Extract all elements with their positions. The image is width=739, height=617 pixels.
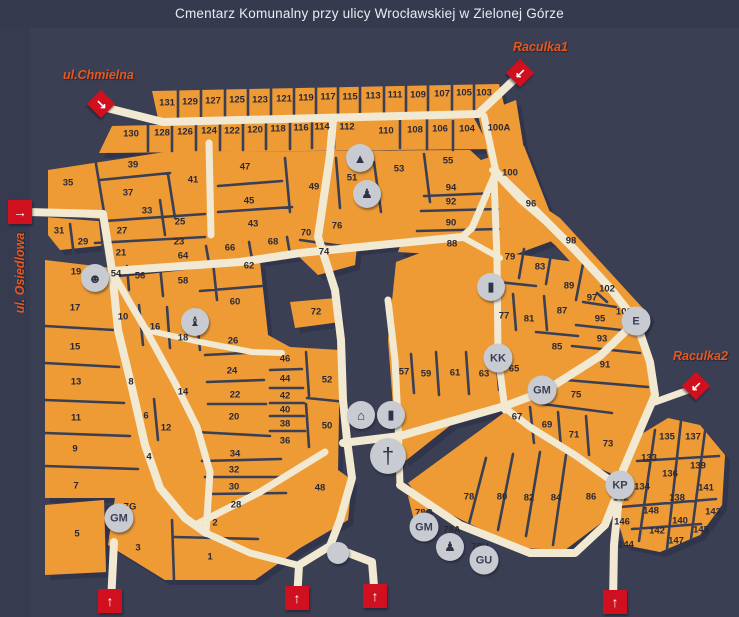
section-4[interactable]: 4: [146, 452, 151, 463]
section-5[interactable]: 5: [74, 529, 79, 540]
entrance-osiedlowa-icon[interactable]: →: [8, 200, 32, 224]
section-24[interactable]: 24: [227, 366, 238, 377]
section-22[interactable]: 22: [230, 390, 241, 401]
section-109[interactable]: 109: [410, 90, 426, 101]
section-47[interactable]: 47: [240, 162, 251, 173]
section-117[interactable]: 117: [320, 92, 335, 103]
chapel-icon: ⌂: [347, 401, 375, 429]
entrance-south-4-icon[interactable]: ↑: [603, 590, 627, 614]
section-103[interactable]: 103: [476, 88, 492, 99]
entrance-raculka1-icon[interactable]: ↙: [506, 59, 534, 87]
section-119[interactable]: 119: [298, 93, 313, 104]
section-76[interactable]: 76: [332, 221, 343, 232]
section-105[interactable]: 105: [456, 88, 472, 99]
section-87[interactable]: 87: [557, 306, 568, 317]
entrance-arrow-icon: →: [13, 204, 27, 220]
section-82[interactable]: 82: [524, 493, 535, 504]
section-74[interactable]: 74: [319, 247, 330, 258]
section-134[interactable]: 134: [634, 482, 650, 493]
section-2[interactable]: 2: [212, 518, 217, 529]
section-14[interactable]: 14: [178, 387, 189, 398]
section-115[interactable]: 115: [342, 92, 357, 103]
section-130[interactable]: 130: [123, 129, 139, 140]
section-144[interactable]: 144: [618, 540, 634, 551]
section-32[interactable]: 32: [229, 465, 240, 476]
section-44[interactable]: 44: [280, 374, 291, 385]
section-143[interactable]: 143: [705, 507, 721, 518]
section-131[interactable]: 131: [159, 98, 175, 109]
section-148[interactable]: 148: [643, 506, 659, 517]
section-137[interactable]: 137: [685, 432, 701, 443]
section-79[interactable]: 79: [505, 252, 516, 263]
section-78[interactable]: 78: [464, 492, 475, 503]
entrance-arrow-icon: ↙: [691, 378, 702, 394]
e-badge-icon: E: [622, 307, 651, 336]
section-116[interactable]: 116: [293, 123, 308, 134]
street-label-raculka1: Raculka1: [513, 40, 568, 54]
section-68[interactable]: 68: [268, 237, 279, 248]
section-56[interactable]: 56: [135, 271, 146, 282]
section-45[interactable]: 45: [244, 196, 255, 207]
section-35[interactable]: 35: [63, 178, 74, 189]
section-54[interactable]: 54: [111, 269, 122, 280]
section-30[interactable]: 30: [229, 482, 240, 493]
section-107[interactable]: 107: [434, 89, 450, 100]
section-140[interactable]: 140: [672, 516, 688, 527]
section-138[interactable]: 138: [669, 493, 685, 504]
section-81[interactable]: 81: [524, 314, 535, 325]
section-96[interactable]: 96: [526, 199, 537, 210]
section-49[interactable]: 49: [309, 182, 320, 193]
section-9[interactable]: 9: [72, 444, 77, 455]
kk-badge-icon: KK: [484, 344, 513, 373]
section-6[interactable]: 6: [143, 411, 148, 422]
entrance-arrow-icon: ↑: [372, 588, 379, 604]
gu-badge-icon: GU: [470, 546, 499, 575]
labels-layer: 1311291271251231211191171151131111091071…: [0, 0, 739, 617]
section-8[interactable]: 8: [128, 377, 133, 388]
section-97[interactable]: 97: [587, 293, 598, 304]
section-83[interactable]: 83: [535, 262, 546, 273]
section-73[interactable]: 73: [603, 439, 614, 450]
section-93[interactable]: 93: [597, 334, 608, 345]
section-77[interactable]: 77: [499, 311, 510, 322]
entrance-arrow-icon: ↑: [294, 590, 301, 606]
section-21[interactable]: 21: [116, 248, 127, 259]
section-37[interactable]: 37: [123, 188, 134, 199]
statue-icon: ♟: [353, 180, 381, 208]
section-69[interactable]: 69: [542, 420, 553, 431]
section-58[interactable]: 58: [178, 276, 189, 287]
section-36[interactable]: 36: [280, 436, 291, 447]
entrance-raculka2-icon[interactable]: ↙: [682, 372, 710, 400]
entrance-south-1-icon[interactable]: ↑: [98, 589, 122, 613]
bust-monument-icon: ☻: [81, 264, 109, 292]
section-19[interactable]: 19: [71, 267, 82, 278]
section-67[interactable]: 67: [512, 412, 523, 423]
section-27[interactable]: 27: [117, 226, 128, 237]
section-13[interactable]: 13: [71, 377, 82, 388]
section-147[interactable]: 147: [668, 536, 684, 547]
section-72[interactable]: 72: [311, 307, 322, 318]
section-98[interactable]: 98: [566, 236, 577, 247]
section-3[interactable]: 3: [135, 543, 140, 554]
section-146[interactable]: 146: [614, 517, 630, 528]
section-135[interactable]: 135: [659, 432, 675, 443]
section-124[interactable]: 124: [201, 126, 217, 137]
section-40[interactable]: 40: [280, 405, 291, 416]
section-16[interactable]: 16: [150, 322, 161, 333]
section-66[interactable]: 66: [225, 243, 236, 254]
section-41[interactable]: 41: [188, 175, 199, 186]
section-51[interactable]: 51: [347, 173, 358, 184]
entrance-south-2-icon[interactable]: ↑: [285, 586, 309, 610]
section-121[interactable]: 121: [276, 94, 292, 105]
section-128[interactable]: 128: [154, 128, 170, 139]
section-129[interactable]: 129: [182, 97, 198, 108]
section-17[interactable]: 17: [70, 303, 81, 314]
section-122[interactable]: 122: [224, 126, 240, 137]
gm-badge-icon: GM: [410, 513, 439, 542]
section-139[interactable]: 139: [690, 461, 706, 472]
section-18[interactable]: 18: [178, 333, 189, 344]
street-label-osiedlowa: ul. Osiedlowa: [13, 223, 27, 323]
section-127[interactable]: 127: [205, 96, 221, 107]
section-60[interactable]: 60: [230, 297, 241, 308]
section-112[interactable]: 112: [339, 122, 354, 133]
section-94[interactable]: 94: [446, 183, 457, 194]
section-7[interactable]: 7: [73, 481, 78, 492]
section-28[interactable]: 28: [231, 500, 242, 511]
section-84[interactable]: 84: [551, 493, 562, 504]
section-70[interactable]: 70: [301, 228, 312, 239]
section-31[interactable]: 31: [54, 226, 65, 237]
entrance-south-3-icon[interactable]: ↑: [363, 584, 387, 608]
page-title: Cmentarz Komunalny przy ulicy Wrocławski…: [0, 6, 739, 21]
gm-badge-icon: GM: [528, 376, 557, 405]
kp-badge-icon: KP: [606, 471, 635, 500]
gm-badge-icon: GM: [105, 504, 134, 533]
cross-icon: †: [370, 438, 406, 474]
section-111[interactable]: 111: [388, 90, 403, 101]
section-39[interactable]: 39: [128, 160, 139, 171]
section-91[interactable]: 91: [600, 360, 611, 371]
section-42[interactable]: 42: [280, 391, 291, 402]
section-55[interactable]: 55: [443, 156, 454, 167]
section-110[interactable]: 110: [378, 126, 393, 137]
section-133[interactable]: 133: [641, 453, 657, 464]
cemetery-map-page: 1311291271251231211191171151131111091071…: [0, 0, 739, 617]
section-57[interactable]: 57: [399, 367, 410, 378]
section-126[interactable]: 126: [177, 127, 193, 138]
angel-statue-icon: ♝: [181, 308, 209, 336]
section-118[interactable]: 118: [270, 124, 285, 135]
section-89[interactable]: 89: [564, 281, 575, 292]
section-142[interactable]: 142: [649, 526, 665, 537]
entrance-arrow-icon: ↑: [107, 593, 114, 609]
section-95[interactable]: 95: [595, 314, 606, 325]
section-92[interactable]: 92: [446, 197, 457, 208]
entrance-arrow-icon: ↙: [515, 65, 526, 81]
section-63[interactable]: 63: [479, 369, 490, 380]
section-38[interactable]: 38: [280, 419, 291, 430]
section-10[interactable]: 10: [118, 312, 129, 323]
section-11[interactable]: 11: [71, 413, 81, 424]
tomb-monument-icon: ▮: [477, 273, 505, 301]
section-33[interactable]: 33: [142, 206, 153, 217]
section-123[interactable]: 123: [252, 95, 268, 106]
entrance-arrow-icon: ↘: [96, 96, 107, 112]
section-50[interactable]: 50: [322, 421, 333, 432]
section-102[interactable]: 102: [599, 284, 615, 295]
entrance-arrow-icon: ↑: [612, 594, 619, 610]
section-71[interactable]: 71: [569, 430, 580, 441]
street-label-chmielna: ul.Chmielna: [63, 68, 134, 82]
section-125[interactable]: 125: [229, 95, 245, 106]
dot-icon: [327, 542, 349, 564]
section-136[interactable]: 136: [662, 469, 678, 480]
section-120[interactable]: 120: [247, 125, 263, 136]
section-52[interactable]: 52: [322, 375, 333, 386]
section-1[interactable]: 1: [207, 552, 212, 563]
section-80[interactable]: 80: [497, 492, 508, 503]
section-108[interactable]: 108: [407, 125, 423, 136]
section-141[interactable]: 141: [698, 483, 714, 494]
section-85[interactable]: 85: [552, 342, 563, 353]
section-26[interactable]: 26: [228, 336, 239, 347]
section-75[interactable]: 75: [571, 390, 582, 401]
section-100A[interactable]: 100A: [488, 123, 511, 134]
street-label-raculka2: Raculka2: [673, 349, 728, 363]
section-90[interactable]: 90: [446, 218, 457, 229]
section-64[interactable]: 64: [178, 251, 189, 262]
section-20[interactable]: 20: [229, 412, 240, 423]
section-46[interactable]: 46: [280, 354, 291, 365]
section-145[interactable]: 145: [693, 525, 709, 536]
section-23[interactable]: 23: [174, 237, 185, 248]
section-114[interactable]: 114: [314, 122, 329, 133]
section-48[interactable]: 48: [315, 483, 326, 494]
section-53[interactable]: 53: [394, 164, 405, 175]
section-25[interactable]: 25: [175, 217, 186, 228]
section-29[interactable]: 29: [78, 237, 89, 248]
entrance-chmielna-icon[interactable]: ↘: [87, 90, 115, 118]
obelisk-monument-icon: ▲: [346, 144, 374, 172]
section-34[interactable]: 34: [230, 449, 241, 460]
section-62[interactable]: 62: [244, 261, 255, 272]
section-15[interactable]: 15: [70, 342, 81, 353]
section-104[interactable]: 104: [459, 124, 475, 135]
section-113[interactable]: 113: [365, 91, 380, 102]
candle-icon: ▮: [377, 401, 405, 429]
section-88[interactable]: 88: [447, 239, 458, 250]
section-61[interactable]: 61: [450, 368, 461, 379]
section-106[interactable]: 106: [432, 124, 448, 135]
statue-icon: ♟: [436, 533, 464, 561]
section-100[interactable]: 100: [502, 168, 518, 179]
section-59[interactable]: 59: [421, 369, 432, 380]
section-86[interactable]: 86: [586, 492, 597, 503]
section-12[interactable]: 12: [161, 423, 172, 434]
section-43[interactable]: 43: [248, 219, 259, 230]
